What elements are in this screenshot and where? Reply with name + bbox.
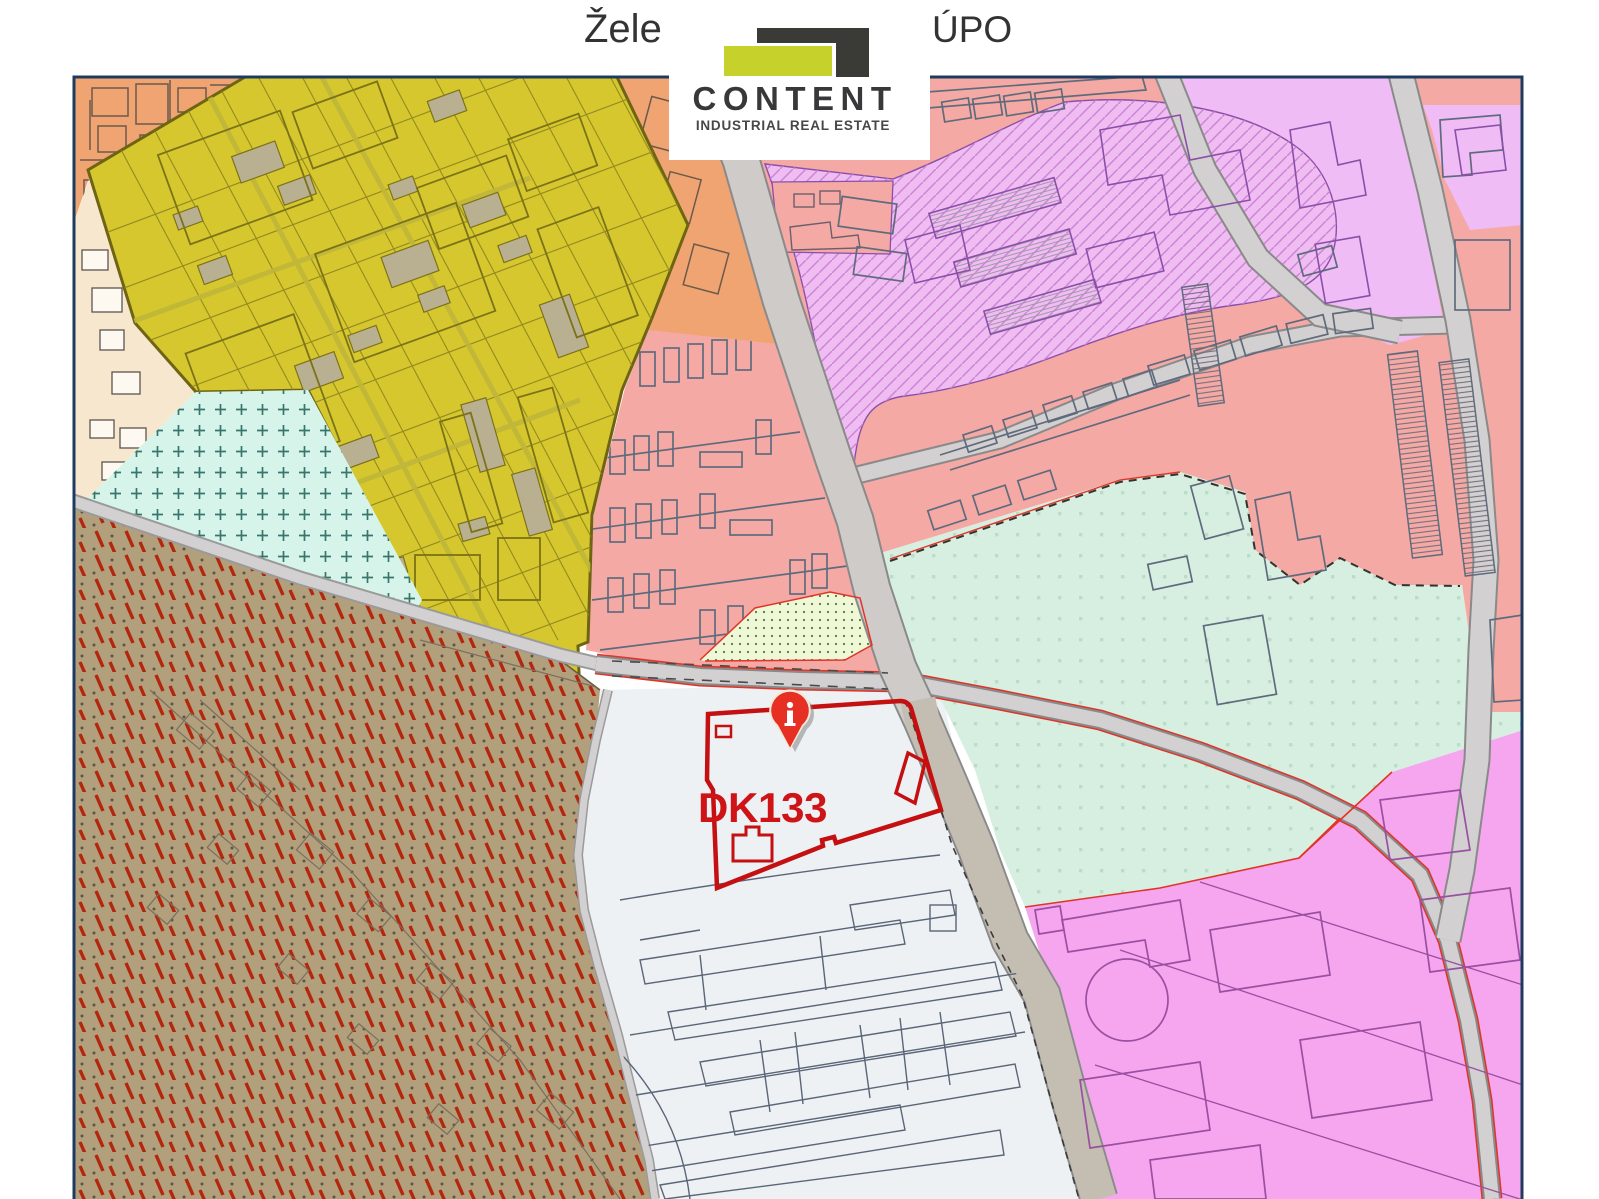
svg-text:ÚPO: ÚPO (932, 9, 1012, 50)
svg-text:INDUSTRIAL REAL ESTATE: INDUSTRIAL REAL ESTATE (696, 118, 890, 133)
svg-text:DK133: DK133 (698, 784, 827, 831)
svg-text:CONTENT: CONTENT (693, 80, 898, 117)
svg-text:Žele: Žele (584, 6, 662, 51)
